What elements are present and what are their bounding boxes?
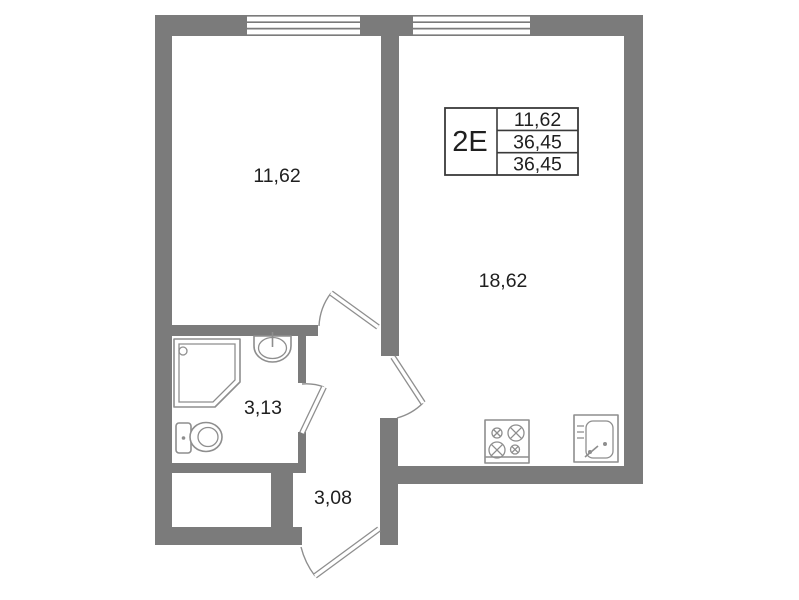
wall-segment-kitchen-bottom	[380, 466, 643, 484]
info-row-living-area: 11,62	[514, 109, 561, 131]
kitchen-sink-icon	[574, 415, 618, 462]
wall-segment-bathroom-right	[298, 432, 306, 463]
door-kitchen-living-icon	[393, 357, 423, 418]
info-row-overall-area: 36,45	[513, 154, 562, 176]
unit-info-box: 2Е 11,62 36,45 36,45	[445, 108, 578, 176]
bathroom-area-label: 3,13	[244, 397, 282, 419]
window-right-icon	[413, 16, 530, 35]
floor-plan-drawing: 11,62 18,62 3,13 3,08 2Е 11,62 36,45 36,…	[0, 0, 799, 600]
toilet-icon	[176, 423, 222, 454]
living-room-area-label: 11,62	[253, 165, 300, 187]
wall-segment-bottom	[155, 527, 302, 545]
door-entrance-icon	[301, 529, 379, 576]
wall-segment-bathroom-bottom	[155, 463, 306, 473]
hallway-area-label: 3,08	[314, 487, 352, 509]
wall-segment-middle-lower	[380, 418, 398, 545]
bathroom-sink-icon	[254, 332, 291, 362]
wall-segment-bathroom-top	[155, 325, 318, 336]
stove-icon	[485, 420, 529, 463]
door-living-room-icon	[319, 293, 378, 327]
window-left-icon	[247, 16, 360, 35]
unit-type-label: 2Е	[452, 126, 487, 158]
wall-segment-closet-right	[271, 473, 293, 527]
floor-plan: 11,62 18,62 3,13 3,08 2Е 11,62 36,45 36,…	[0, 0, 799, 600]
wall-segment-bathroom-right	[298, 336, 306, 383]
wall-segment	[360, 15, 413, 36]
walls	[155, 15, 643, 545]
wall-segment-right	[624, 15, 643, 484]
kitchen-living-area-label: 18,62	[479, 270, 528, 292]
shower-icon	[174, 339, 240, 407]
door-bathroom-icon	[302, 384, 324, 433]
wall-segment-middle	[381, 36, 399, 356]
info-row-total-area: 36,45	[513, 132, 562, 154]
